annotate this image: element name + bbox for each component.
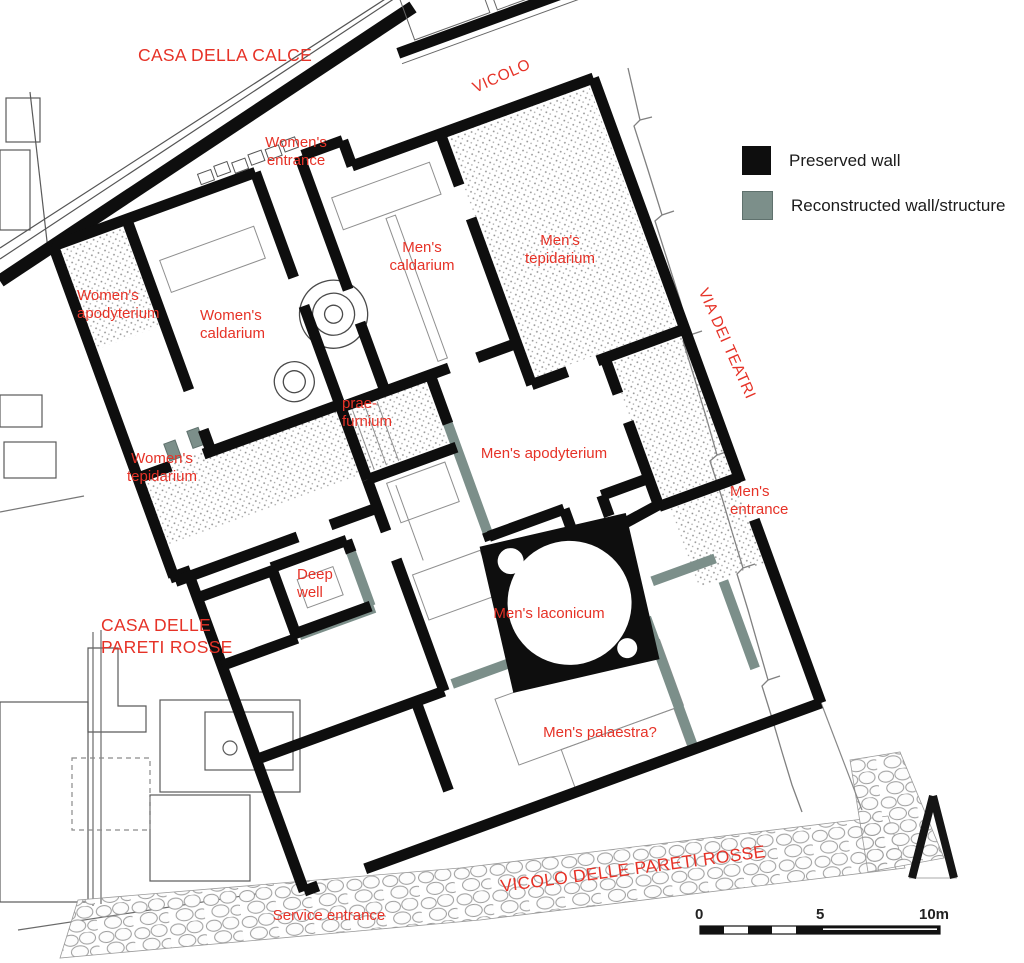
label-service-entrance: Service entrance [273,907,386,925]
legend-row-preserved: Preserved wall [742,146,1005,175]
label-womens-entrance: Women's entrance [265,134,327,170]
scale-tick-10m: 10m [919,906,949,923]
label-casa-della-calce: CASA DELLA CALCE [138,45,312,66]
label-mens-apodyterium: Men's apodyterium [481,445,607,463]
legend: Preserved wall Reconstructed wall/struct… [742,146,1005,236]
label-mens-entrance: Men's entrance [730,483,788,519]
label-womens-apodyterium: Women's apodyterium [77,287,160,323]
reconstructed-wall-swatch [742,191,773,220]
preserved-wall-swatch [742,146,771,175]
label-womens-caldarium: Women's caldarium [200,307,265,343]
label-casa-delle-pareti-rosse: CASA DELLE PARETI ROSSE [101,615,233,659]
preserved-wall-label: Preserved wall [789,151,901,171]
scale-tick-0: 0 [695,906,703,923]
bath-complex [0,0,852,898]
label-mens-caldarium: Men's caldarium [389,239,454,275]
label-prae-furnium: prae- furnium [342,395,392,431]
label-mens-tepidarium: Men's tepidarium [525,232,595,268]
label-deep-well: Deep well [297,566,333,602]
legend-row-reconstructed: Reconstructed wall/structure [742,191,1005,220]
scale-bar [700,926,940,934]
label-mens-palaestra: Men's palaestra? [543,724,657,742]
preserved-walls [28,0,852,898]
label-mens-laconicum: Men's laconicum [493,605,604,623]
reconstructed-wall-label: Reconstructed wall/structure [791,196,1005,216]
label-womens-tepidarium: Women's tepidarium [127,450,197,486]
scale-tick-5: 5 [816,906,824,923]
plan-figure: CASA DELLA CALCE VICOLO Women's entrance… [0,0,1024,963]
street-vicolo-pareti-rosse-cobbles [60,700,944,958]
